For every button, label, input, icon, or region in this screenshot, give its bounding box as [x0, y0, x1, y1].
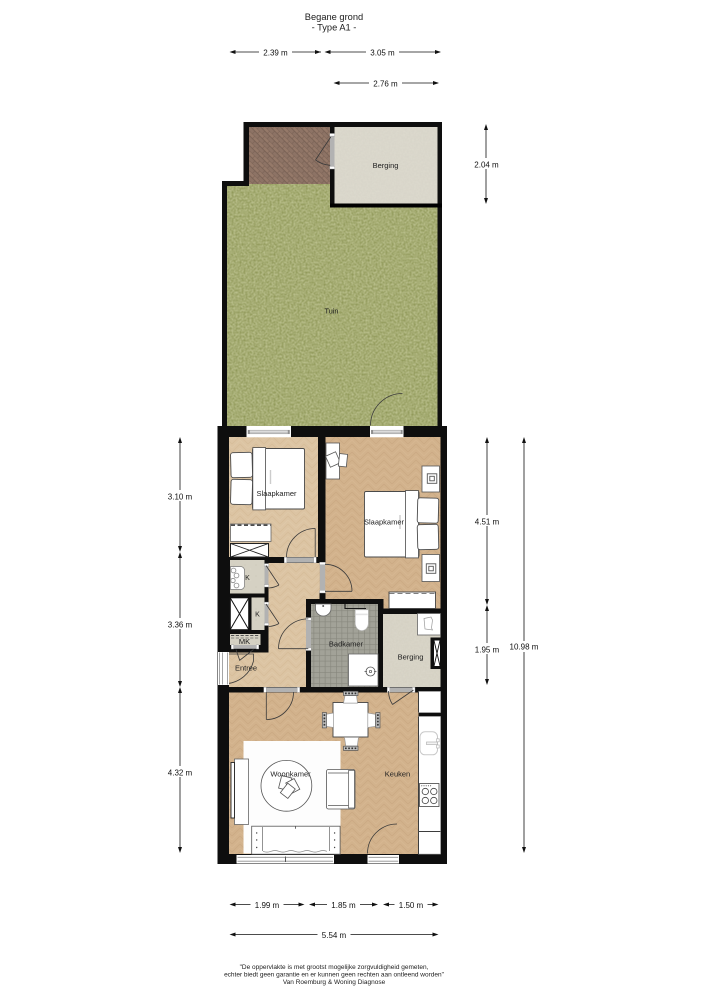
svg-text:Slaapkamer: Slaapkamer — [364, 518, 405, 527]
svg-text:Berging: Berging — [373, 161, 399, 170]
svg-text:2.04 m: 2.04 m — [474, 161, 499, 170]
svg-text:K: K — [245, 575, 250, 582]
svg-text:Van Roemburg & Woning Diagnose: Van Roemburg & Woning Diagnose — [283, 979, 386, 986]
svg-text:Badkamer: Badkamer — [329, 640, 364, 649]
svg-text:- Type A1 -: - Type A1 - — [312, 23, 357, 33]
svg-text:Begane grond: Begane grond — [305, 12, 363, 22]
svg-text:2.76 m: 2.76 m — [373, 80, 398, 89]
svg-text:3.36 m: 3.36 m — [168, 621, 193, 630]
svg-text:1.95 m: 1.95 m — [475, 646, 500, 655]
svg-text:Entree: Entree — [235, 664, 257, 673]
svg-text:3.05 m: 3.05 m — [370, 49, 395, 58]
svg-text:echter biedt geen garantie en: echter biedt geen garantie en er kunnen … — [224, 972, 445, 979]
svg-text:4.32 m: 4.32 m — [168, 769, 193, 778]
svg-text:Berging: Berging — [398, 653, 424, 662]
svg-text:MK: MK — [239, 637, 250, 646]
svg-text:Woonkamer: Woonkamer — [270, 770, 311, 779]
svg-text:5.54 m: 5.54 m — [322, 931, 347, 940]
svg-text:"De oppervlakte is met grootst: "De oppervlakte is met grootst mogelijke… — [240, 964, 429, 971]
svg-text:3.10 m: 3.10 m — [168, 493, 193, 502]
svg-text:4.51 m: 4.51 m — [475, 518, 500, 527]
svg-text:1.50 m: 1.50 m — [399, 901, 424, 910]
svg-text:Tuin: Tuin — [325, 307, 339, 316]
svg-text:10.98 m: 10.98 m — [510, 643, 539, 652]
svg-text:K: K — [255, 612, 260, 619]
svg-text:Slaapkamer: Slaapkamer — [256, 489, 297, 498]
svg-text:1.99 m: 1.99 m — [255, 901, 280, 910]
svg-text:2.39 m: 2.39 m — [263, 49, 288, 58]
svg-text:1.85 m: 1.85 m — [331, 901, 356, 910]
svg-text:Keuken: Keuken — [385, 770, 410, 779]
